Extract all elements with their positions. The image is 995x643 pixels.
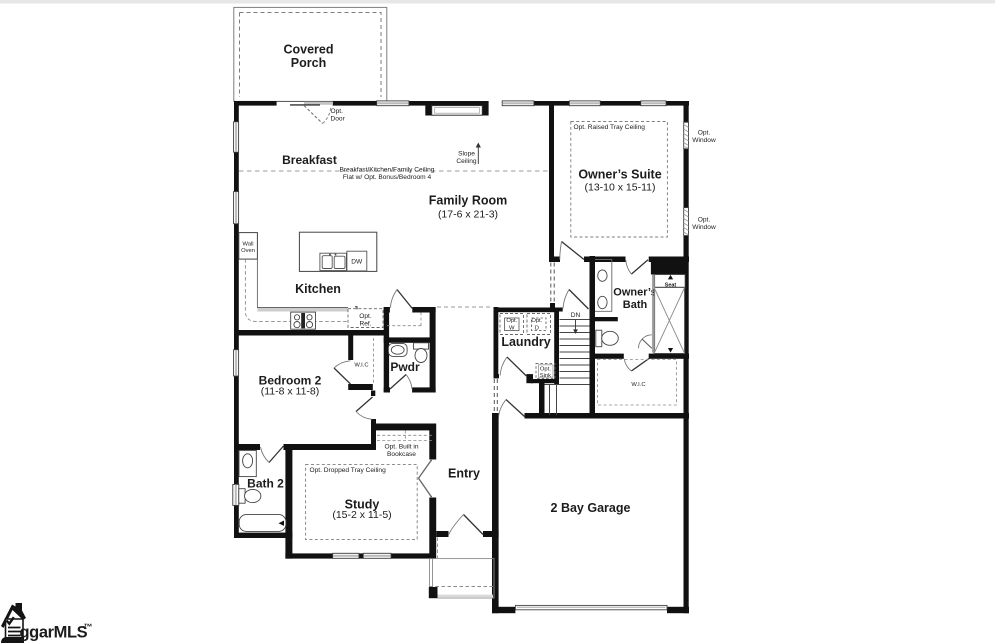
svg-text:Covered: Covered (283, 42, 333, 56)
svg-text:DN: DN (571, 312, 581, 319)
svg-text:Entry: Entry (448, 467, 480, 481)
svg-text:Kitchen: Kitchen (295, 282, 341, 296)
svg-text:(11-8 x 11-8): (11-8 x 11-8) (261, 386, 320, 398)
svg-text:Sink: Sink (540, 373, 551, 379)
svg-text:Bath: Bath (623, 299, 648, 311)
svg-text:Opt. Dropped Tray Ceiling: Opt. Dropped Tray Ceiling (310, 467, 387, 474)
svg-text:Opt. Built in: Opt. Built in (384, 444, 418, 451)
svg-text:W: W (509, 326, 515, 332)
svg-text:Opt.: Opt. (531, 318, 542, 324)
svg-text:Bookcase: Bookcase (387, 451, 416, 458)
svg-text:D: D (535, 326, 539, 332)
svg-text:Ceiling: Ceiling (456, 158, 476, 165)
svg-text:Owner’s: Owner’s (613, 287, 656, 299)
svg-text:(17-6 x 21-3): (17-6 x 21-3) (438, 208, 498, 220)
svg-text:Opt.: Opt. (506, 318, 517, 324)
svg-text:Bath 2: Bath 2 (247, 477, 284, 491)
svg-text:DW: DW (351, 259, 363, 266)
svg-text:Opt.: Opt. (698, 130, 711, 137)
svg-text:Pwdr: Pwdr (390, 360, 420, 374)
svg-text:Wall: Wall (242, 242, 253, 248)
svg-text:(15-2 x 11-5): (15-2 x 11-5) (332, 509, 391, 521)
svg-text:Opt.: Opt. (540, 366, 551, 372)
svg-text:Opt.: Opt. (359, 313, 372, 320)
svg-text:(13-10 x 15-11): (13-10 x 15-11) (584, 181, 655, 193)
svg-text:Breakfast/Kitchen/Family Ceili: Breakfast/Kitchen/Family Ceiling (340, 167, 435, 174)
svg-text:Window: Window (692, 224, 716, 231)
svg-text:Slope: Slope (458, 151, 475, 158)
svg-text:Owner’s Suite: Owner’s Suite (578, 168, 661, 182)
svg-text:Opt.: Opt. (698, 217, 711, 224)
svg-text:™: ™ (84, 622, 93, 632)
svg-text:2 Bay Garage: 2 Bay Garage (551, 501, 631, 515)
svg-text:Opt. Raised Tray Ceiling: Opt. Raised Tray Ceiling (574, 124, 646, 131)
svg-text:W.I.C: W.I.C (354, 363, 368, 369)
svg-text:W.I.C: W.I.C (631, 382, 645, 388)
svg-text:Porch: Porch (291, 56, 326, 70)
svg-text:Window: Window (692, 137, 716, 144)
svg-text:Ref.: Ref. (359, 321, 371, 328)
svg-text:Flat w/ Opt. Bonus/Bedroom 4: Flat w/ Opt. Bonus/Bedroom 4 (343, 174, 432, 181)
svg-text:Laundry: Laundry (501, 335, 550, 349)
svg-text:ggarMLS: ggarMLS (20, 624, 88, 642)
svg-text:Breakfast: Breakfast (282, 153, 337, 167)
svg-text:Family Room: Family Room (429, 194, 508, 208)
svg-text:Opt.: Opt. (331, 108, 344, 115)
svg-text:Door: Door (331, 116, 346, 123)
svg-text:Oven: Oven (241, 248, 255, 254)
